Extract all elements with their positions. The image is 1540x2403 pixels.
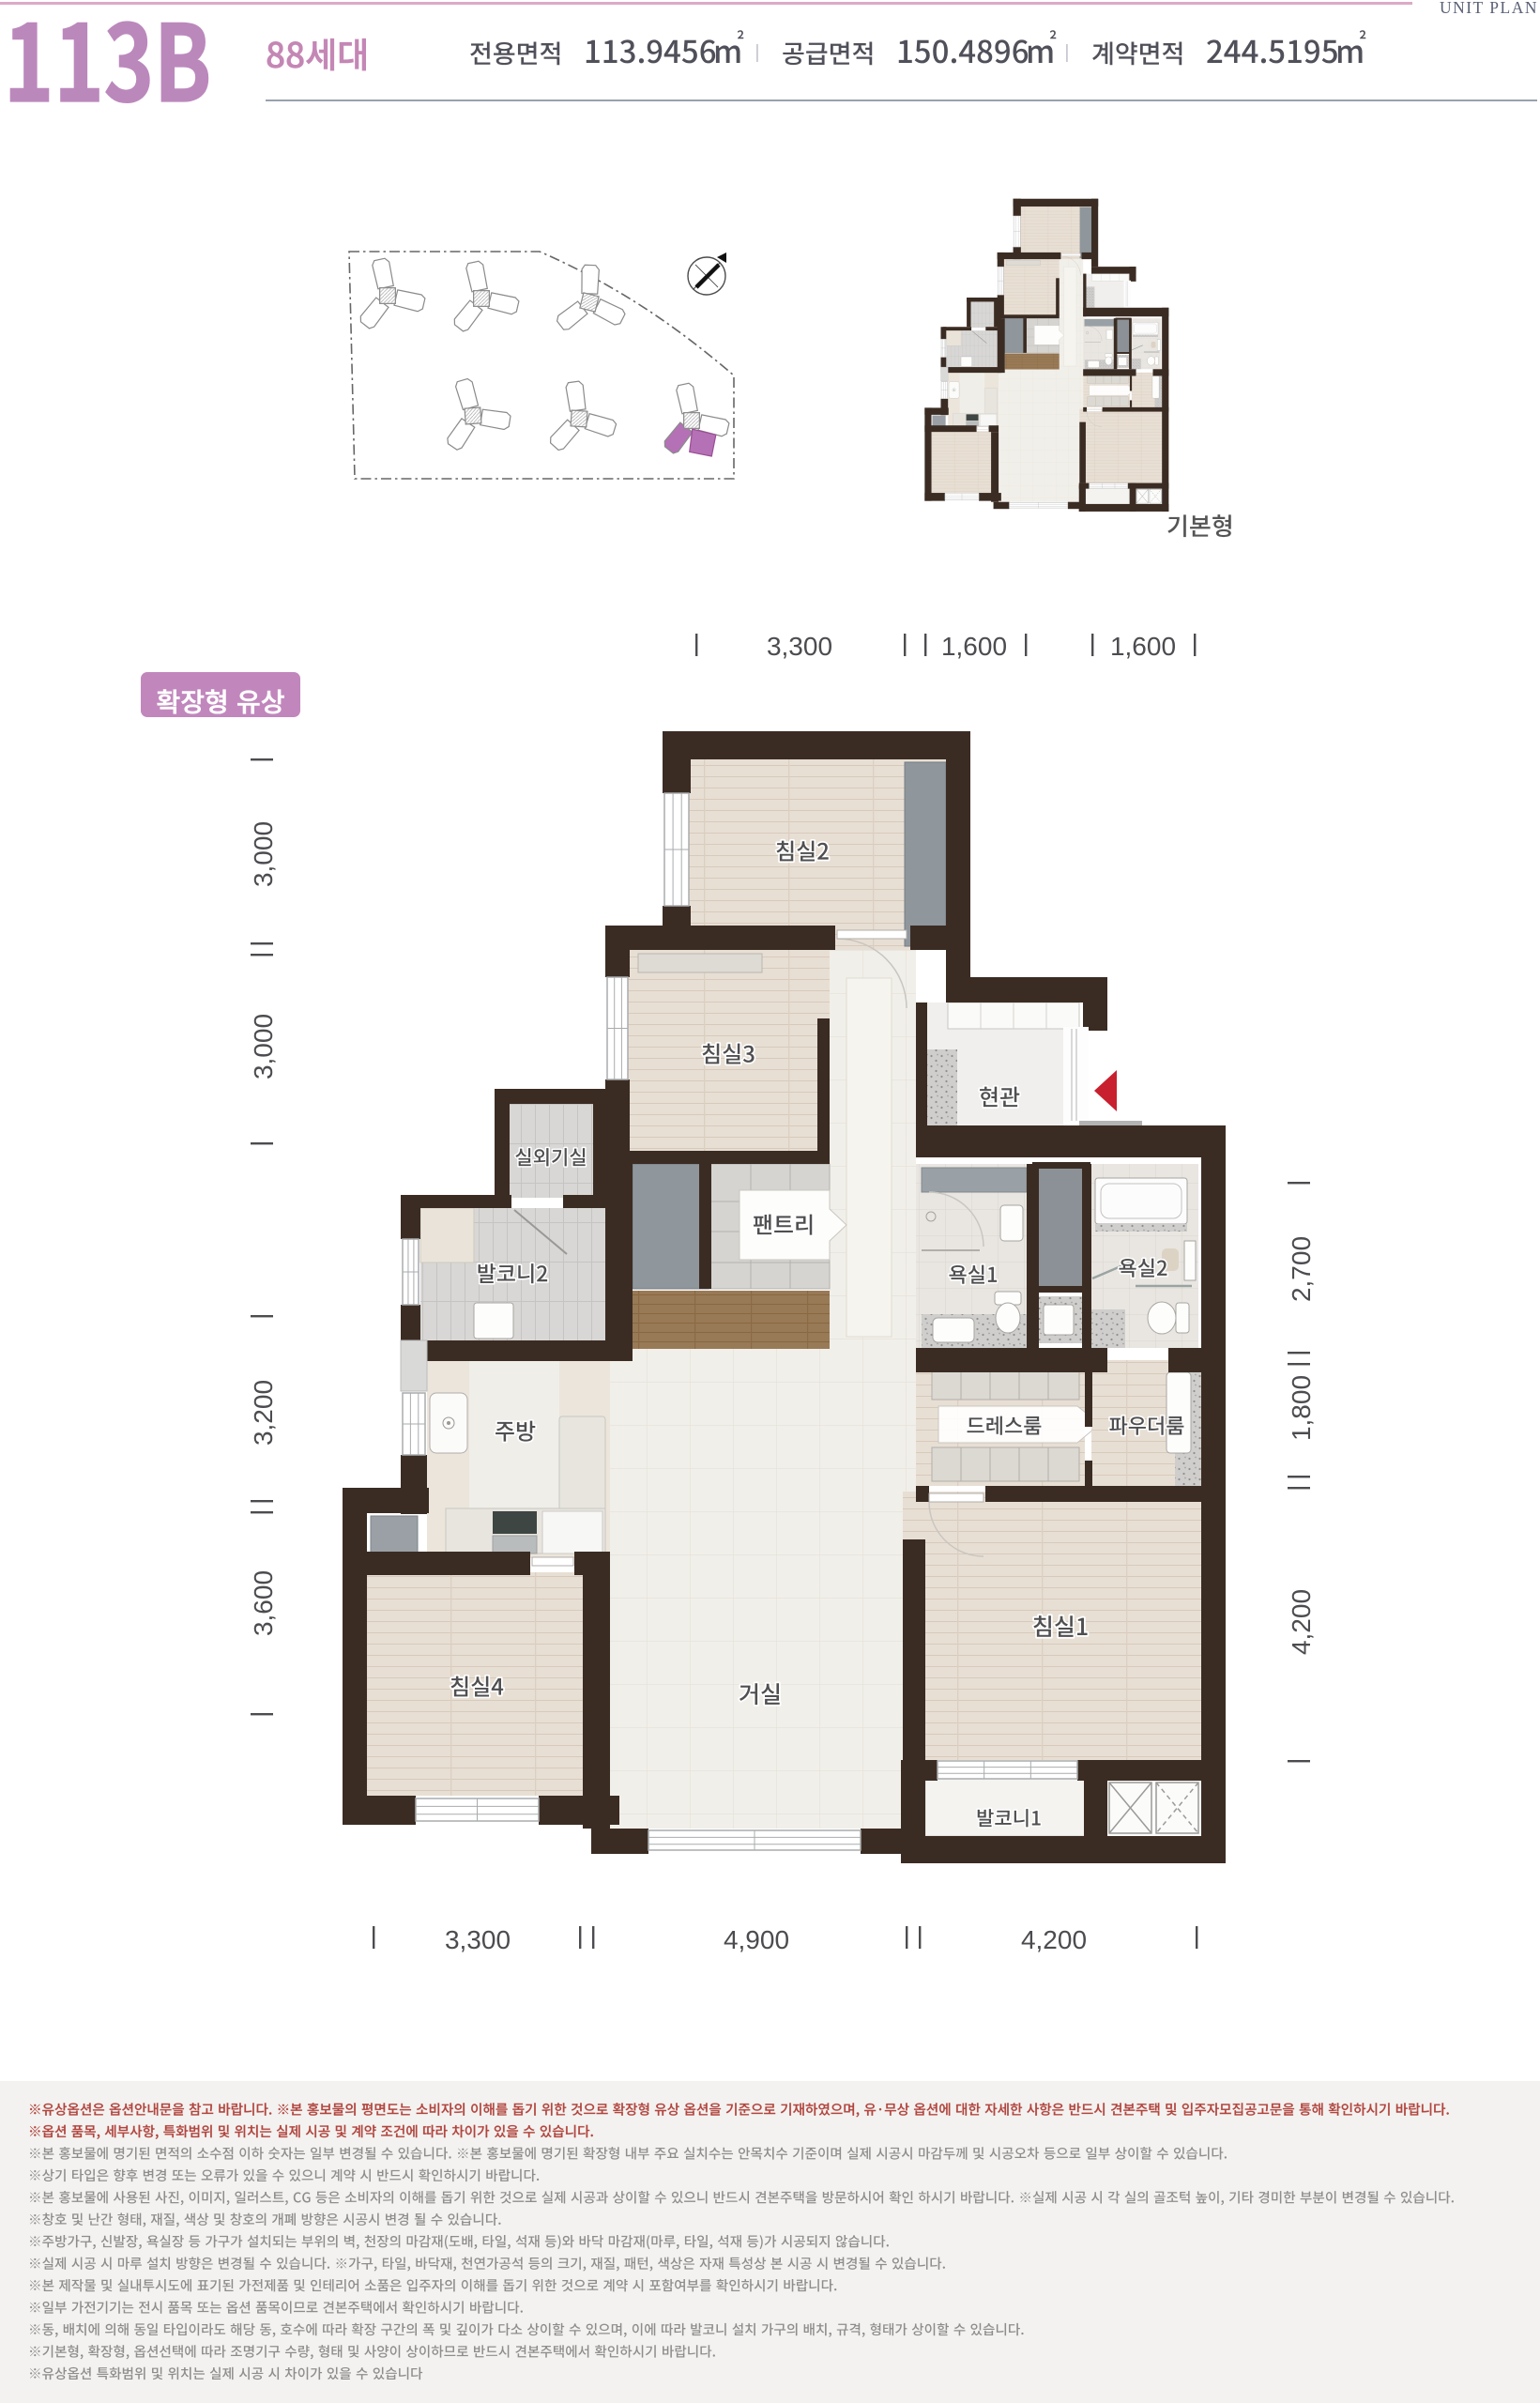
svg-text:1,800: 1,800 — [1287, 1375, 1316, 1441]
svg-text:4,900: 4,900 — [724, 1925, 789, 1954]
svg-text:3,200: 3,200 — [249, 1380, 278, 1446]
svg-text:3,000: 3,000 — [249, 821, 278, 887]
svg-text:2,700: 2,700 — [1287, 1236, 1316, 1302]
svg-text:3,300: 3,300 — [767, 632, 832, 661]
svg-text:3,300: 3,300 — [445, 1925, 511, 1954]
svg-text:1,600: 1,600 — [941, 632, 1007, 661]
svg-text:3,600: 3,600 — [249, 1570, 278, 1636]
svg-text:UNIT PLAN: UNIT PLAN — [1440, 0, 1538, 17]
svg-text:4,200: 4,200 — [1287, 1589, 1316, 1655]
svg-text:4,200: 4,200 — [1021, 1925, 1087, 1954]
svg-text:3,000: 3,000 — [249, 1014, 278, 1079]
svg-text:1,600: 1,600 — [1110, 632, 1176, 661]
